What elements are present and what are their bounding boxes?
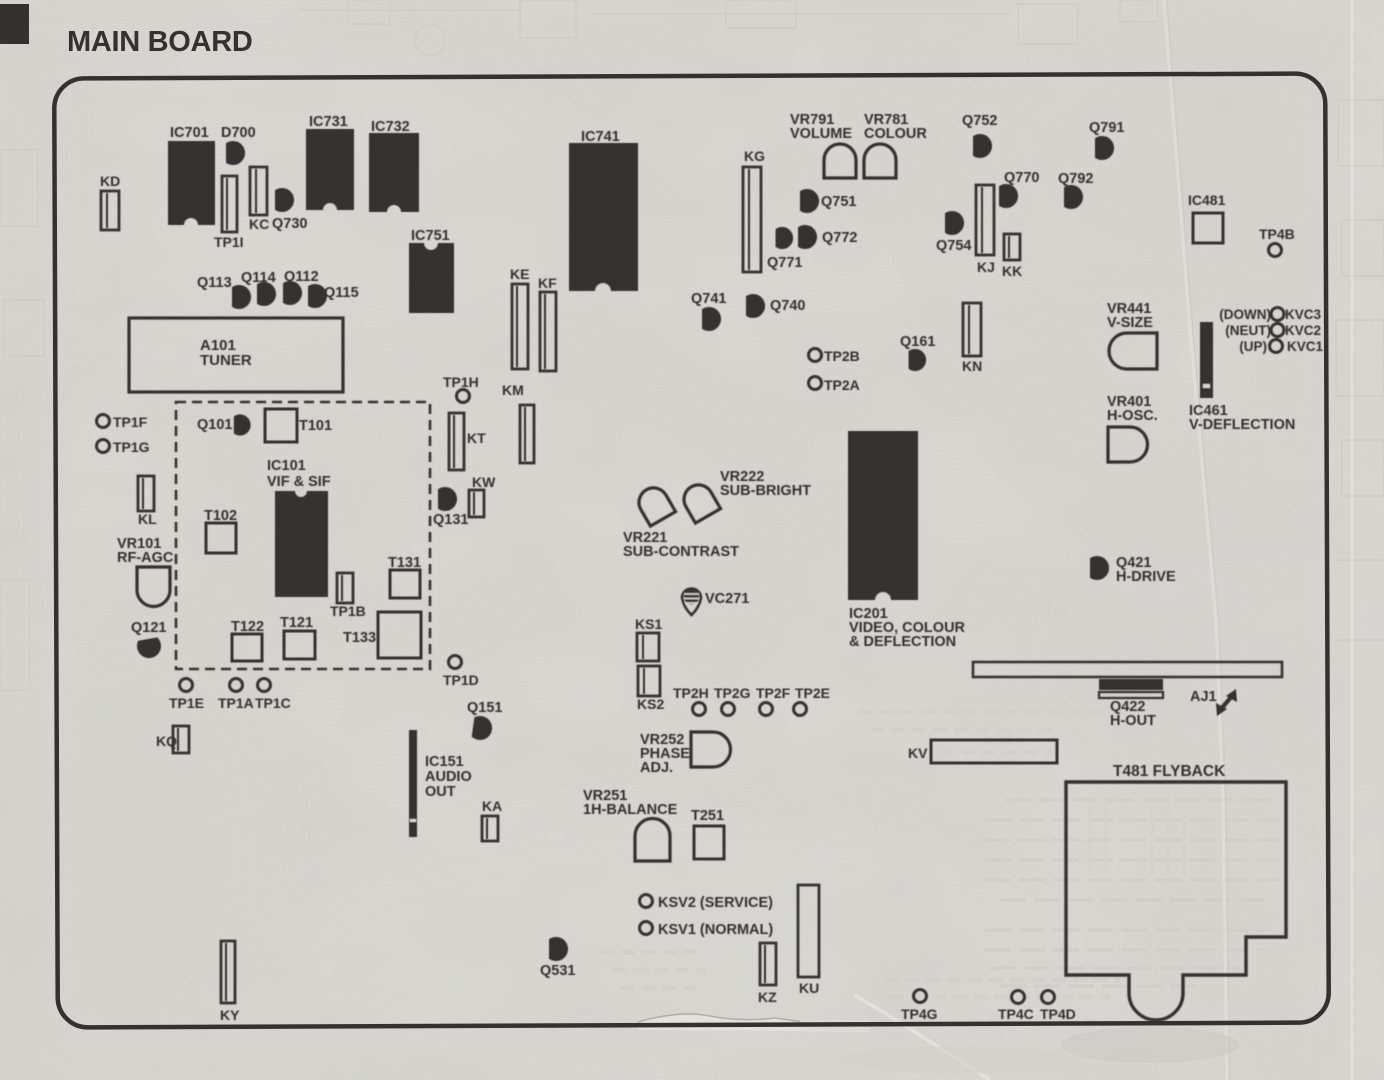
- svg-text:IC151: IC151: [425, 754, 464, 770]
- svg-text:KK: KK: [1002, 263, 1022, 279]
- svg-text:TP2A: TP2A: [824, 377, 860, 393]
- svg-text:KN: KN: [962, 358, 982, 374]
- svg-text:Q151: Q151: [467, 700, 502, 716]
- svg-text:T133: T133: [343, 630, 376, 646]
- svg-text:TP4G: TP4G: [901, 1006, 938, 1022]
- svg-text:TP1E: TP1E: [169, 695, 204, 711]
- svg-text:T121: T121: [280, 615, 313, 631]
- svg-text:KJ: KJ: [977, 259, 995, 275]
- svg-text:Q121: Q121: [131, 620, 166, 636]
- svg-text:RF-AGC: RF-AGC: [117, 550, 174, 566]
- svg-text:Q115: Q115: [324, 285, 359, 301]
- svg-text:OUT: OUT: [425, 784, 456, 800]
- svg-text:AJ1: AJ1: [1190, 689, 1217, 705]
- svg-text:KVC1: KVC1: [1287, 339, 1324, 354]
- svg-text:KG: KG: [744, 148, 765, 164]
- svg-text:IC101: IC101: [267, 458, 306, 474]
- svg-text:Q792: Q792: [1058, 171, 1093, 187]
- svg-text:KZ: KZ: [758, 989, 777, 1005]
- svg-text:Q772: Q772: [822, 230, 857, 246]
- svg-text:T481 FLYBACK: T481 FLYBACK: [1113, 763, 1226, 780]
- svg-text:TP2H: TP2H: [673, 685, 709, 701]
- svg-text:KSV1 (NORMAL): KSV1 (NORMAL): [658, 922, 773, 938]
- svg-text:KL: KL: [138, 511, 157, 527]
- svg-text:KF: KF: [538, 275, 557, 291]
- svg-text:Q730: Q730: [272, 216, 307, 232]
- svg-text:TP2G: TP2G: [714, 685, 751, 701]
- svg-text:KVC3: KVC3: [1285, 307, 1322, 322]
- svg-text:ADJ.: ADJ.: [640, 760, 673, 776]
- svg-text:TP4D: TP4D: [1040, 1006, 1076, 1022]
- svg-text:TP2B: TP2B: [824, 348, 860, 364]
- svg-text:VC271: VC271: [705, 591, 749, 607]
- svg-text:TP1I: TP1I: [214, 234, 244, 250]
- svg-text:Q741: Q741: [691, 291, 726, 307]
- svg-text:TP1D: TP1D: [443, 672, 479, 688]
- svg-text:(NEUT): (NEUT): [1225, 323, 1271, 338]
- svg-text:Q161: Q161: [900, 334, 935, 350]
- svg-text:TP2E: TP2E: [795, 685, 830, 701]
- svg-text:1H-BALANCE: 1H-BALANCE: [583, 802, 678, 818]
- svg-text:T101: T101: [299, 418, 332, 434]
- svg-text:KVC2: KVC2: [1285, 323, 1321, 338]
- svg-text:& DEFLECTION: & DEFLECTION: [849, 634, 956, 650]
- svg-text:IC481: IC481: [1188, 192, 1226, 208]
- svg-text:H-DRIVE: H-DRIVE: [1116, 569, 1176, 585]
- svg-text:H-OUT: H-OUT: [1110, 713, 1156, 729]
- svg-text:TP1B: TP1B: [330, 603, 366, 619]
- svg-text:IC741: IC741: [581, 129, 620, 145]
- svg-text:Q751: Q751: [821, 194, 856, 210]
- svg-text:KSV2 (SERVICE): KSV2 (SERVICE): [658, 895, 773, 911]
- svg-text:H-OSC.: H-OSC.: [1107, 408, 1158, 424]
- svg-text:Q101: Q101: [197, 417, 232, 433]
- svg-text:IC751: IC751: [411, 228, 450, 244]
- svg-text:Q113: Q113: [197, 275, 232, 291]
- svg-text:TP1F: TP1F: [113, 414, 148, 430]
- svg-text:KV: KV: [908, 745, 928, 761]
- svg-text:TP4C: TP4C: [998, 1006, 1034, 1022]
- svg-text:TP1C: TP1C: [255, 695, 291, 711]
- svg-text:KC: KC: [249, 216, 269, 232]
- svg-text:KM: KM: [502, 382, 524, 398]
- svg-text:IC701: IC701: [170, 125, 209, 141]
- svg-text:TP4B: TP4B: [1259, 226, 1295, 242]
- svg-text:TUNER: TUNER: [200, 352, 252, 369]
- svg-text:Q791: Q791: [1089, 120, 1124, 136]
- svg-text:KS2: KS2: [637, 696, 664, 712]
- svg-text:SUB-CONTRAST: SUB-CONTRAST: [623, 544, 739, 560]
- svg-text:Q770: Q770: [1004, 170, 1039, 186]
- svg-text:V-SIZE: V-SIZE: [1107, 315, 1153, 331]
- svg-text:VIF & SIF: VIF & SIF: [267, 474, 331, 490]
- svg-text:TP1A: TP1A: [218, 695, 254, 711]
- svg-text:KU: KU: [799, 980, 819, 996]
- svg-text:KW: KW: [472, 474, 496, 490]
- svg-text:KT: KT: [467, 430, 486, 446]
- svg-text:Q531: Q531: [540, 963, 575, 979]
- svg-text:MAIN BOARD: MAIN BOARD: [67, 26, 253, 58]
- svg-text:AUDIO: AUDIO: [425, 769, 472, 785]
- svg-text:D700: D700: [221, 125, 256, 141]
- svg-text:Q740: Q740: [770, 298, 805, 314]
- svg-text:TP1G: TP1G: [113, 439, 150, 455]
- svg-text:KD: KD: [100, 173, 120, 189]
- svg-text:SUB-BRIGHT: SUB-BRIGHT: [720, 483, 811, 499]
- svg-text:Q752: Q752: [962, 113, 997, 129]
- svg-text:(UP): (UP): [1239, 339, 1267, 354]
- svg-text:T251: T251: [691, 808, 724, 824]
- svg-text:(DOWN): (DOWN): [1219, 307, 1271, 322]
- svg-text:V-DEFLECTION: V-DEFLECTION: [1189, 417, 1295, 433]
- svg-text:Q131: Q131: [433, 512, 468, 528]
- svg-text:COLOUR: COLOUR: [864, 126, 927, 142]
- svg-text:Q771: Q771: [767, 255, 802, 271]
- svg-text:KY: KY: [220, 1007, 240, 1023]
- svg-text:KA: KA: [482, 798, 502, 814]
- svg-text:TP1H: TP1H: [443, 374, 479, 390]
- svg-text:KE: KE: [510, 266, 529, 282]
- svg-text:VOLUME: VOLUME: [790, 126, 852, 142]
- svg-text:IC731: IC731: [309, 114, 348, 130]
- svg-text:Q754: Q754: [936, 238, 971, 254]
- svg-text:KS1: KS1: [635, 616, 662, 632]
- svg-text:TP2F: TP2F: [756, 685, 791, 701]
- svg-text:IC732: IC732: [371, 119, 410, 135]
